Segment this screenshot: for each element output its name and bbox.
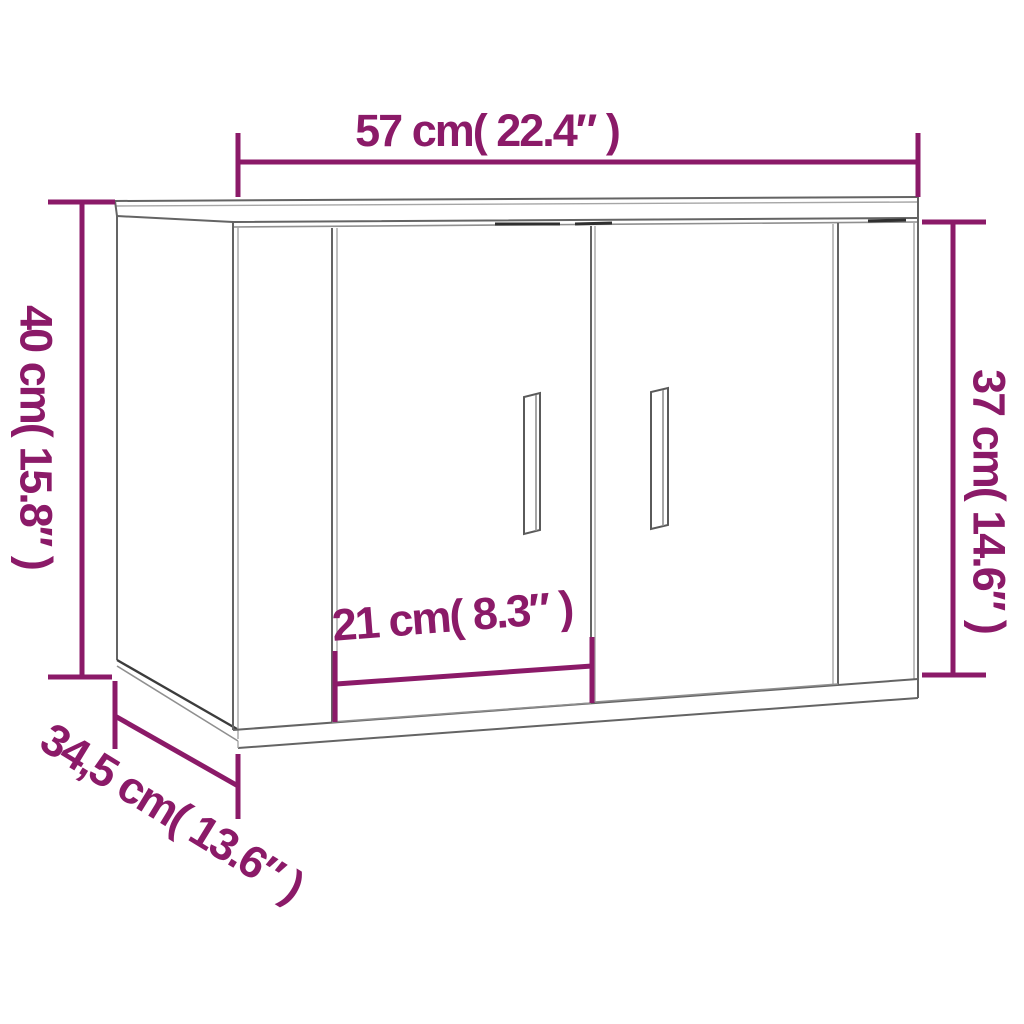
door-gap-shadow-3 — [868, 220, 906, 221]
height-right-label: 37 cm( 14.6″ ) — [964, 369, 1015, 633]
top-front-edge — [117, 216, 918, 222]
side-bottom-edge — [117, 660, 237, 729]
cabinet-dimension-diagram: 57 cm( 22.4″ ) 40 cm( 15.8″ ) 37 cm( 14.… — [0, 0, 1024, 1024]
top-face-back-edge — [115, 197, 918, 201]
top-face-left-edge — [115, 201, 117, 216]
left-door-bottom-edge — [332, 703, 591, 722]
right-door-handle — [651, 388, 668, 529]
height-left-label: 40 cm( 15.8″ ) — [11, 305, 62, 569]
right-door-bottom-edge — [595, 684, 838, 702]
width-label: 57 cm( 22.4″ ) — [355, 105, 619, 156]
door-width-label: 21 cm( 8.3″ ) — [330, 581, 574, 651]
cabinet-line-art — [115, 197, 918, 748]
door-width-dimension-line — [335, 637, 592, 722]
top-face-inner-edge — [115, 202, 917, 206]
dimension-lines — [48, 133, 986, 819]
door-width-line — [336, 666, 592, 684]
depth-label: 34,5 cm( 13.6″ ) — [32, 713, 312, 912]
dimension-labels: 57 cm( 22.4″ ) 40 cm( 15.8″ ) 37 cm( 14.… — [11, 105, 1015, 911]
door-gap-shadow-2 — [575, 223, 612, 224]
diagram-canvas: 57 cm( 22.4″ ) 40 cm( 15.8″ ) 37 cm( 14.… — [0, 0, 1024, 1024]
left-door-handle — [524, 393, 540, 534]
